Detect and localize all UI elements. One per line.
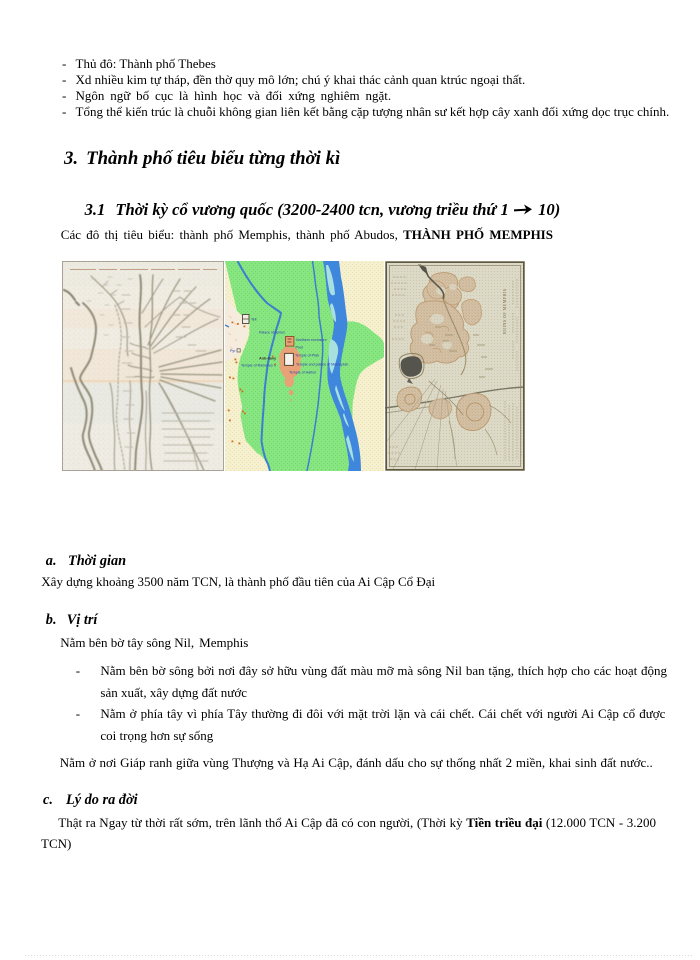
svg-text:Temple and palace of Merneptah: Temple and palace of Merneptah [296,363,348,367]
svg-text:Pool: Pool [296,346,303,350]
svg-text:Tell: Tell [251,318,257,322]
svg-text:Northern enclosure: Northern enclosure [296,338,327,342]
svg-text:Temple of Ptah: Temple of Ptah [295,354,319,358]
svg-text:RUINS OF MEMPHIS: RUINS OF MEMPHIS [502,288,507,334]
svg-text:Pyr: Pyr [230,349,236,353]
svg-text:Palace of Apries: Palace of Apries [259,331,285,335]
svg-text:Anb-tawy: Anb-tawy [259,357,277,361]
svg-text:Temple of Rameses II: Temple of Rameses II [241,364,276,368]
svg-text:Temple of Hathor: Temple of Hathor [289,371,317,375]
